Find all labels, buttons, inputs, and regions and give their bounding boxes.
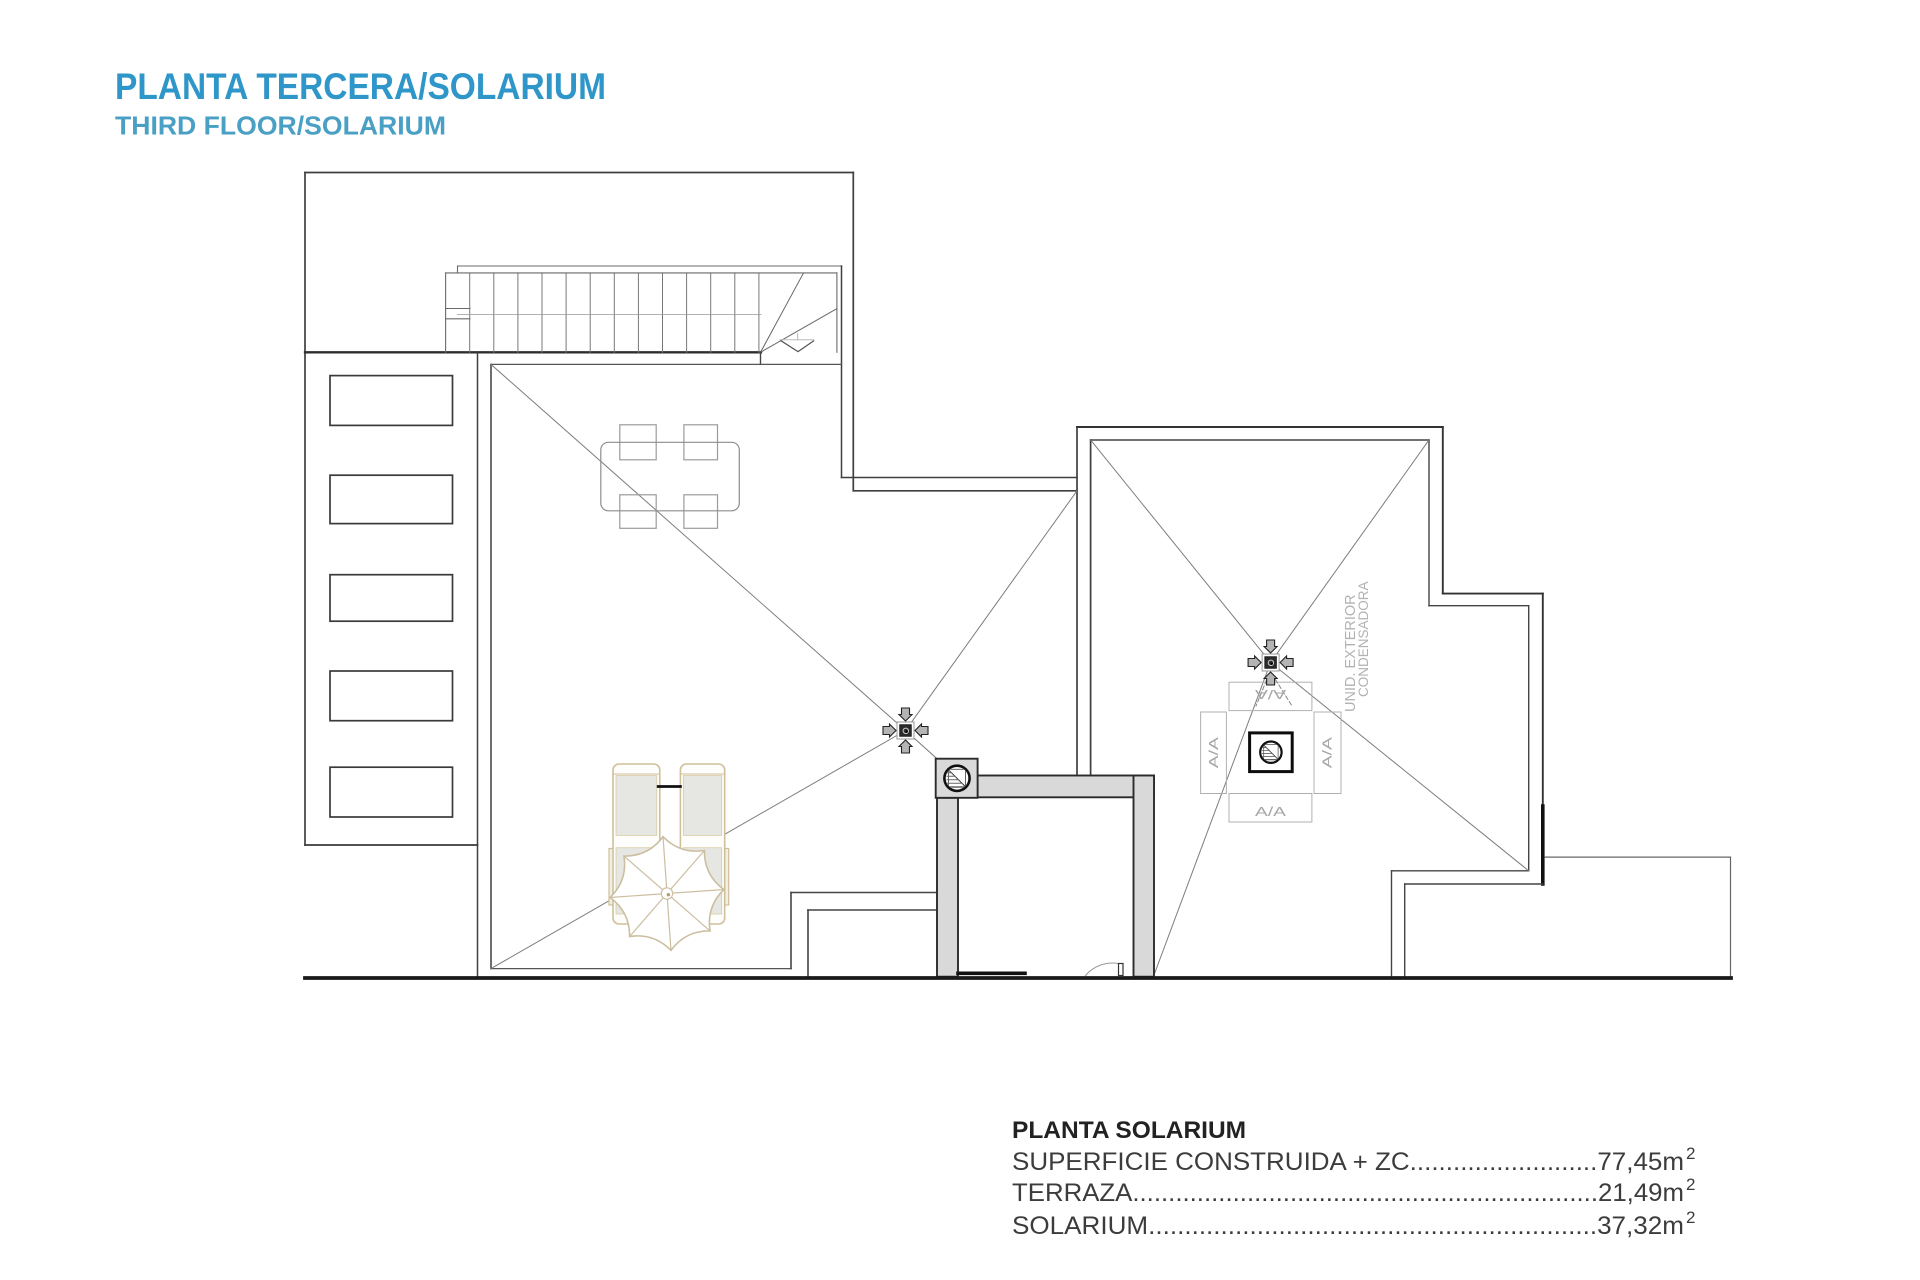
svg-text:A/A: A/A [1207,736,1221,768]
svg-text:2: 2 [1686,1175,1695,1194]
svg-text:TERRAZA.......................: TERRAZA.................................… [1012,1179,1684,1207]
svg-text:THIRD FLOOR/SOLARIUM: THIRD FLOOR/SOLARIUM [115,113,446,141]
svg-text:SOLARIUM......................: SOLARIUM................................… [1012,1212,1684,1240]
svg-text:2: 2 [1686,1208,1695,1227]
svg-text:2: 2 [1686,1144,1695,1163]
svg-text:PLANTA SOLARIUM: PLANTA SOLARIUM [1012,1117,1246,1144]
svg-text:CONDENSADORA: CONDENSADORA [1356,581,1371,697]
svg-text:PLANTA TERCERA/SOLARIUM: PLANTA TERCERA/SOLARIUM [115,65,606,107]
svg-text:A/A: A/A [1254,687,1286,701]
svg-text:A/A: A/A [1255,805,1287,819]
svg-text:A/A: A/A [1321,736,1335,768]
svg-text:SUPERFICIE CONSTRUIDA + ZC....: SUPERFICIE CONSTRUIDA + ZC..............… [1012,1148,1684,1176]
